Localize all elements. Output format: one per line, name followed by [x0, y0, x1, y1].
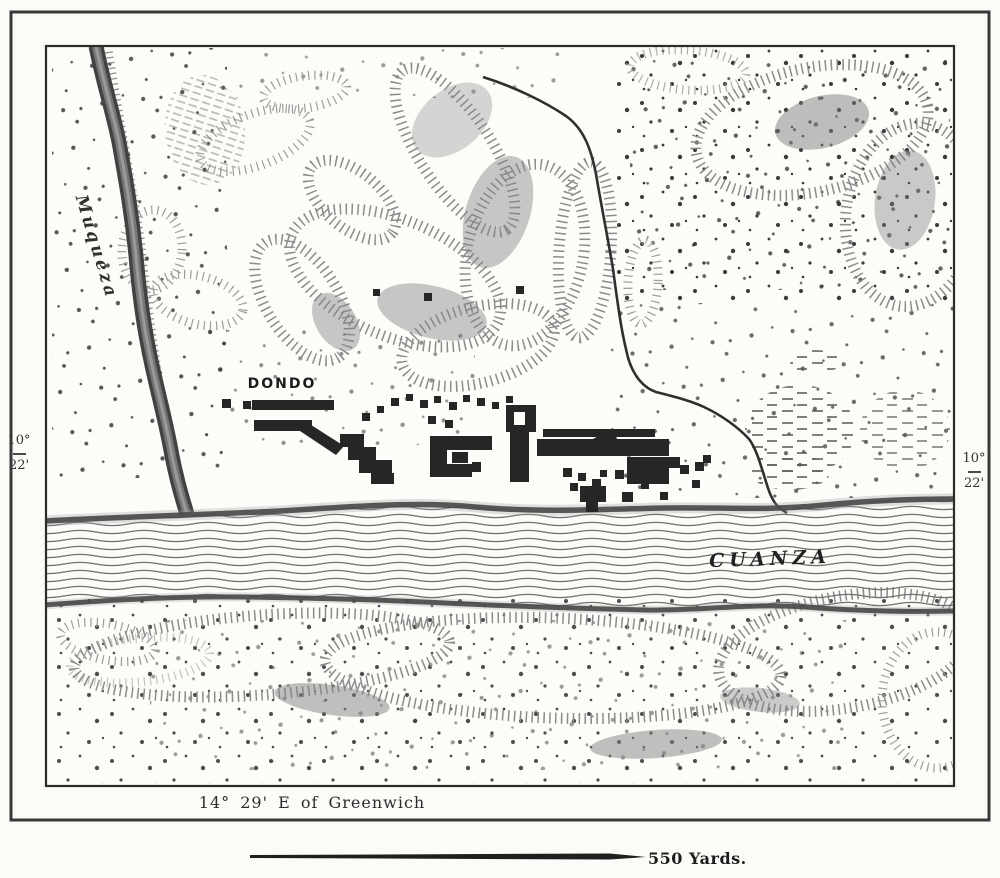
- town-label-dondo: DONDO: [248, 376, 317, 392]
- latitude-divider-right: [968, 471, 981, 473]
- map-page: Muqueza DONDO CUANZA 10° 22' 10° 22' 14°…: [0, 0, 1000, 878]
- latitude-divider-left: [13, 453, 26, 455]
- scale-bar-line: [250, 854, 646, 860]
- latitude-minutes-right: 22': [964, 476, 984, 491]
- latitude-label-left: 10° 22': [1, 434, 37, 472]
- latitude-degrees-right: 10°: [962, 451, 985, 466]
- longitude-label: 14° 29' E of Greenwich: [199, 793, 425, 812]
- latitude-degrees-left: 10°: [7, 433, 30, 448]
- latitude-label-right: 10° 22': [956, 452, 992, 490]
- map-engraving: [0, 0, 1000, 878]
- scale-label: 550 Yards.: [648, 849, 747, 868]
- river-label-cuanza: CUANZA: [709, 546, 832, 572]
- latitude-minutes-left: 22': [9, 458, 29, 473]
